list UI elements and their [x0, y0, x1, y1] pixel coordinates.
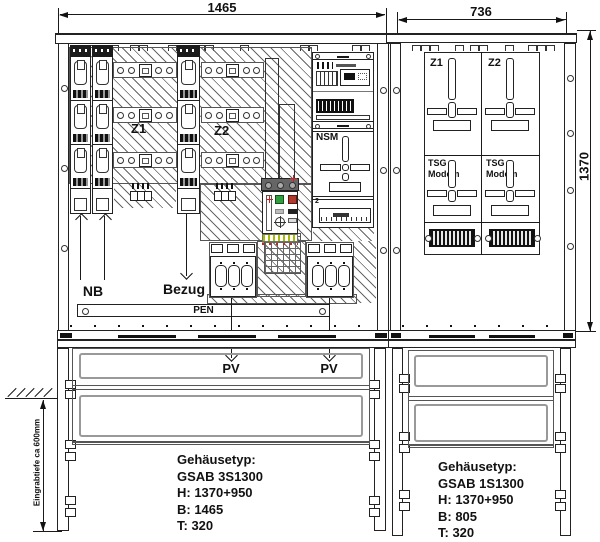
left-cabinet-spec: Gehäusetyp: GSAB 3S1300 H: 1370+950 B: 1…: [177, 452, 327, 535]
terminal-comb-block: [214, 183, 236, 205]
spec-depth: T: 320: [438, 525, 578, 542]
nh-fuse-strip: [177, 45, 200, 214]
busbar-connector-row: [113, 152, 177, 168]
spec-title: Gehäusetyp:: [438, 459, 578, 476]
spec-width: B: 1465: [177, 502, 327, 519]
busbar-connector-row: [201, 152, 264, 168]
spec-height: H: 1370+950: [177, 485, 327, 502]
busbar-connector-row: [201, 107, 264, 123]
busbar-duct: [265, 58, 279, 181]
busbar-connector-row: [201, 62, 264, 78]
meter-field-z1-label: Z1: [131, 121, 146, 136]
busbar-duct: [279, 104, 295, 181]
din-rail: [316, 115, 370, 120]
screw-dots-row: [70, 325, 377, 327]
klemmen-index-label: 2: [315, 198, 319, 205]
spec-model: GSAB 1S1300: [438, 476, 578, 493]
terminal-group-left: [209, 242, 257, 298]
meter-cabinet-technical-drawing: 1465 736 1370: [0, 0, 600, 542]
right-cabinet-floor: [388, 330, 576, 340]
spec-height: H: 1370+950: [438, 492, 578, 509]
pen-label: PEN: [193, 305, 214, 316]
right-cabinet-roof: [386, 33, 577, 43]
burial-depth-label: Eingrabtiefe ca 600mm: [33, 403, 42, 523]
terminal-group-right: [306, 242, 354, 298]
terminal-comb-block: [130, 183, 152, 205]
right-cabinet-spec: Gehäusetyp: GSAB 1S1300 H: 1370+950 B: 8…: [438, 459, 578, 542]
right-meter-board: [424, 52, 540, 255]
mini-fuse-marks: [317, 62, 333, 69]
spec-model: GSAB 3S1300: [177, 469, 327, 486]
left-cabinet-floor: [57, 330, 390, 340]
comb-busbar: [316, 99, 354, 113]
dim-width-right-value: 736: [461, 4, 501, 19]
bezug-label: Bezug: [158, 281, 210, 297]
spec-depth: T: 320: [177, 518, 327, 535]
comb-terminal-strip: [429, 229, 475, 247]
screw-dots-row: [402, 325, 562, 327]
nsm-label: NSM: [316, 132, 338, 143]
spec-width: B: 805: [438, 509, 578, 526]
dim-width-left-value: 1465: [197, 0, 247, 15]
device-label-blob: [336, 64, 356, 67]
tsg-left-label-line1: TSG: [428, 158, 447, 168]
spec-title: Gehäusetyp:: [177, 452, 327, 469]
nb-label: NB: [78, 283, 108, 299]
left-cabinet-roof: [55, 33, 392, 44]
comb-terminal-strip: [489, 229, 535, 247]
pen-busbar: PEN: [77, 304, 330, 317]
busbar-connector-row: [113, 62, 177, 78]
meter-panel-hatch: [313, 228, 374, 241]
meter-field-z2-label: Z2: [214, 123, 229, 138]
klemmen-terminal-strip: [319, 208, 371, 223]
din-modules: [316, 71, 338, 86]
dim-height-right-value: 1370: [577, 143, 592, 191]
ripple-control-receiver: [340, 69, 370, 86]
nh-fuse-strip: [92, 45, 113, 214]
right-z2-label: Z2: [488, 57, 501, 69]
tsg-right-label-line1: TSG: [486, 158, 505, 168]
right-z1-label: Z1: [430, 57, 443, 69]
nh-fuse-strip: [70, 45, 91, 214]
